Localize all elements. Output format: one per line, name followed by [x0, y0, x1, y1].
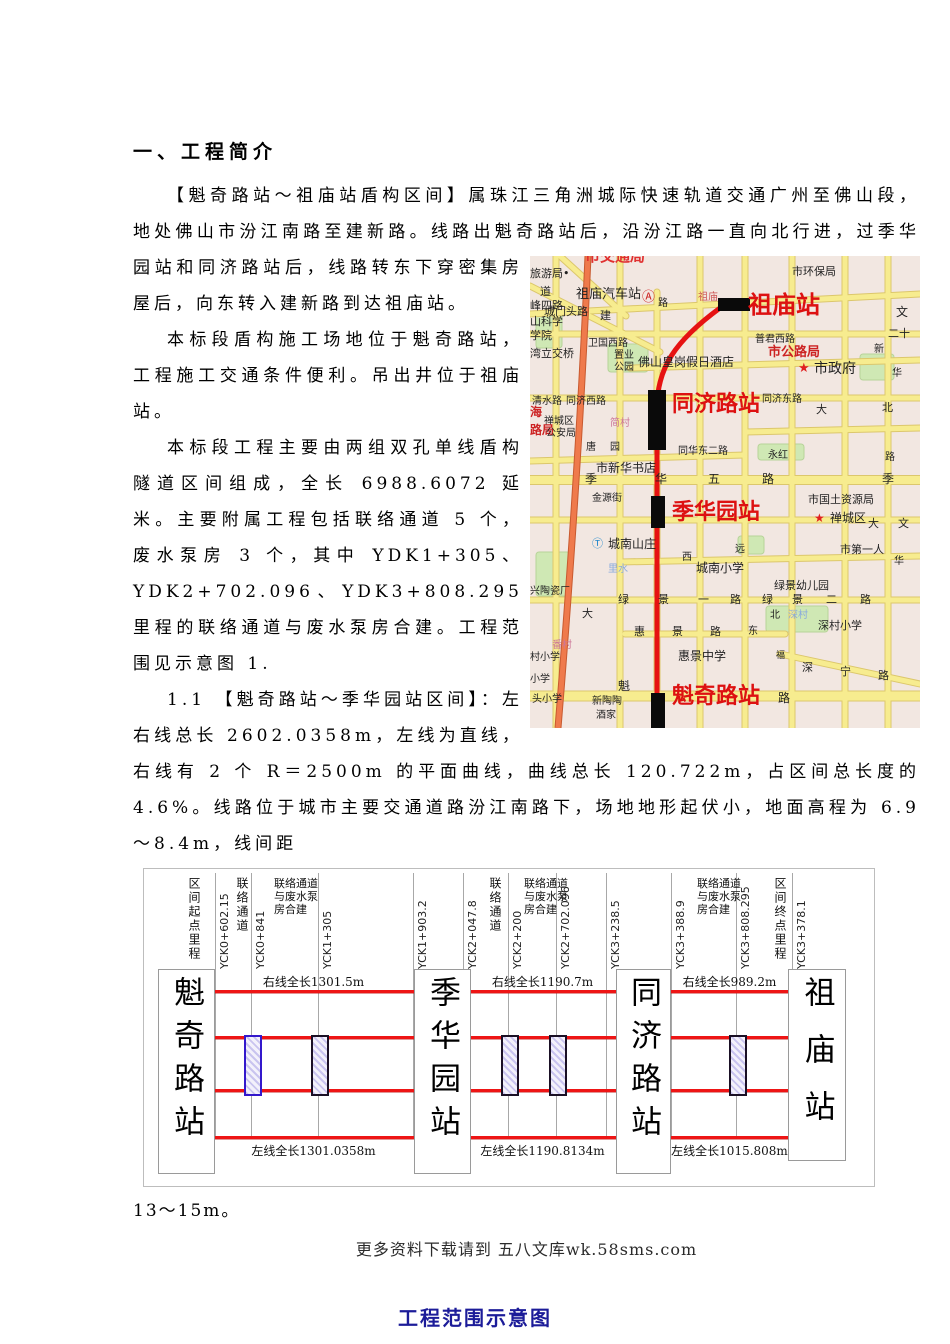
map-text-label: 建	[600, 310, 611, 322]
map-text-label: 绿	[762, 594, 773, 606]
track-line	[669, 990, 790, 993]
star-icon: ★	[814, 512, 825, 525]
chainage-label-text: YCK0+602.15	[218, 875, 231, 969]
map-text-label: 北	[770, 610, 780, 621]
map-text-label: 市第一人	[840, 544, 884, 556]
map-text-label: 同华东二路	[678, 446, 728, 457]
station-box: 同济路站	[616, 969, 671, 1174]
map-text-label: 魁	[618, 680, 630, 693]
map-text-label: 永红	[768, 450, 788, 461]
right-track-length-label: 右线全长1190.7m	[469, 973, 616, 990]
map-text-label: 华	[655, 473, 667, 486]
map-text-label: 禅城区	[830, 512, 866, 525]
chainage-label: YCK2+200	[511, 875, 524, 969]
map-text-label: 同济西路	[566, 396, 606, 407]
map-text-label: 兴陶瓷厂	[530, 586, 570, 597]
map-text-label: 季	[585, 473, 597, 486]
map-text-label: 路	[762, 473, 774, 486]
chainage-tick	[606, 873, 607, 1137]
right-track-length-label: 右线全长1301.5m	[213, 973, 414, 990]
station-name: 同济路站	[621, 970, 666, 1173]
page-content: 一、工程简介	[0, 0, 950, 1229]
map-station-label-zumiao: 祖庙站	[748, 292, 820, 318]
track-line	[213, 1136, 414, 1139]
map-text-label: 金源街	[592, 493, 622, 504]
map-text-label: 路	[878, 670, 889, 682]
station-name: 季华园站	[420, 970, 465, 1173]
map-text-label: 路	[778, 692, 790, 705]
map-text-label: 城南小学	[696, 562, 744, 575]
station-box: 魁奇路站	[158, 969, 215, 1174]
figure-annotation: 联络通道与废水泵房合建	[697, 877, 741, 916]
map-text-label: 华	[894, 556, 904, 567]
figure-annotation: 联络通道	[234, 877, 251, 933]
paragraph-1: 市交通局旅游局•市环保局道祖庙汽车站Ⓐ祖庙路祖庙站峰四路城门头路建文山科学学院二…	[133, 178, 920, 322]
chainage-tick	[318, 873, 319, 1137]
station-name: 祖庙站	[795, 970, 840, 1160]
map-text-label: 景	[658, 594, 669, 606]
map-text-label: 远	[735, 544, 745, 555]
map-text-label: 福	[776, 652, 785, 662]
map-text-label: 佛山皇岗假日酒店	[638, 356, 734, 369]
map-text-label: 大	[582, 608, 593, 620]
chainage-label: YCK3+388.9	[674, 875, 687, 969]
track-line	[469, 1089, 616, 1092]
map-text-label: 文	[896, 306, 908, 319]
map-text-label: 新陶陶	[592, 696, 622, 707]
map-text-label: 城南山庄	[608, 538, 656, 551]
chainage-label: YCK0+841	[254, 875, 267, 969]
chainage-label-text: YCK3+808.295	[739, 875, 752, 969]
map-text-label: 深村	[788, 610, 808, 621]
chainage-tick	[671, 873, 672, 1137]
chainage-tick	[251, 873, 252, 1137]
chainage-label-text: YCK1+903.2	[416, 875, 429, 969]
cross-passage	[311, 1035, 329, 1096]
map-text-label: 宁	[840, 666, 851, 678]
footer-text: 更多资料下载请到 五八文库wk.58sms.com	[133, 1236, 920, 1260]
chainage-label-text: YCK3+378.1	[795, 875, 808, 969]
map-text-label: 路	[860, 594, 871, 606]
map-text-label: 简村	[610, 418, 630, 429]
map-text-label: 华	[892, 368, 902, 379]
chainage-label: YCK2+702.096	[559, 875, 572, 969]
chainage-tick	[508, 873, 509, 1137]
map-text-label: 公安局	[546, 428, 576, 439]
track-line	[469, 1036, 616, 1039]
map-text-label: 路	[885, 452, 895, 463]
page-title: 一、工程简介	[133, 140, 920, 164]
map-text-label: 卫国西路	[588, 338, 628, 349]
map-text-label: 酒家	[596, 710, 616, 721]
map-text-label: 市环保局	[792, 266, 836, 278]
map-text-label: 惠	[634, 626, 645, 638]
chainage-label-text: YCK1+305	[321, 875, 334, 969]
map-text-label: 绿	[618, 594, 629, 606]
map-text-label: 绿景幼儿园	[774, 580, 829, 592]
chainage-label-text: YCK2+702.096	[559, 875, 572, 969]
map-station-rect	[651, 496, 665, 528]
map-text-label: 景	[672, 626, 683, 638]
map-text-label: 置业	[614, 350, 634, 361]
figure-annotation: 区间终点里程	[772, 877, 789, 961]
map-text-label: 村小学	[530, 652, 560, 663]
map-text-label: 海	[530, 406, 542, 419]
track-line	[469, 1136, 616, 1139]
map-text-label: 园	[610, 442, 620, 453]
station-box: 祖庙站	[788, 969, 846, 1161]
paragraph-4-continued: 13～15m。	[133, 1193, 920, 1229]
map-text-label: 景	[792, 594, 803, 606]
map-text-label: 一	[698, 594, 709, 606]
chainage-label: YCK3+808.295	[739, 875, 752, 969]
map-text-label: 季	[882, 473, 894, 486]
cross-passage	[244, 1035, 262, 1096]
map-text-label: 惠景中学	[678, 650, 726, 663]
cross-passage	[549, 1035, 567, 1096]
map-text-label: 大	[816, 404, 827, 416]
map-station-label-kuiqilu: 魁奇路站	[672, 684, 760, 708]
chainage-label: YCK3+378.1	[795, 875, 808, 969]
map-text-label: 市交通局	[585, 256, 645, 265]
map-text-label: 市新华书店	[596, 462, 656, 475]
landmark-icon: Ⓣ	[592, 538, 603, 550]
cross-passage	[501, 1035, 519, 1096]
map-text-label: 道	[540, 286, 551, 298]
map-text-label: 旅游局•	[530, 268, 570, 280]
figure-annotation: 区间起点里程	[186, 877, 203, 961]
station-name: 魁奇路站	[164, 970, 209, 1173]
map-text-label: 同济东路	[762, 394, 802, 405]
left-track-length-label: 左线全长1190.8134m	[469, 1142, 616, 1159]
chainage-tick	[215, 873, 216, 1137]
map-text-label: 路	[710, 626, 721, 638]
map-text-label: 祖庙	[698, 292, 718, 303]
chainage-label-text: YCK3+238.5	[609, 875, 622, 969]
track-line	[469, 990, 616, 993]
chainage-label-text: YCK3+388.9	[674, 875, 687, 969]
map-text-label: 深	[802, 662, 813, 674]
map-text-label: 西	[682, 552, 692, 563]
map-text-label: 里水	[608, 564, 628, 575]
map-text-label: 市公路局	[768, 346, 820, 360]
chainage-label: YCK2+047.8	[466, 875, 479, 969]
map-text-label: 新	[874, 344, 884, 355]
map-text-label: 唐	[586, 442, 596, 453]
chainage-label: YCK1+305	[321, 875, 334, 969]
map-station-rect	[651, 693, 665, 728]
chainage-label: YCK0+602.15	[218, 875, 231, 969]
map-text-label: 市政府	[814, 362, 856, 377]
cross-passage	[729, 1035, 747, 1096]
track-line	[669, 1136, 790, 1139]
map-station-label-jihuayuan: 季华园站	[672, 500, 760, 524]
left-track-length-label: 左线全长1015.808m	[669, 1142, 790, 1159]
map-text-label: 深村小学	[818, 620, 862, 632]
map-text-label: 头小学	[532, 694, 562, 705]
map-text-label: 公园	[614, 362, 634, 373]
map-station-rect	[718, 298, 750, 311]
map-text-label: 祖庙汽车站	[576, 288, 641, 302]
station-box: 季华园站	[414, 969, 471, 1174]
right-track-length-label: 右线全长989.2m	[669, 973, 790, 990]
track-line	[213, 990, 414, 993]
chainage-label-text: YCK0+841	[254, 875, 267, 969]
chainage-label-text: YCK2+047.8	[466, 875, 479, 969]
map-text-label: 普君西路	[755, 334, 795, 345]
map-text-label: 学院	[530, 330, 552, 342]
figure-caption: 工程范围示意图	[0, 1302, 950, 1331]
map: 市交通局旅游局•市环保局道祖庙汽车站Ⓐ祖庙路祖庙站峰四路城门头路建文山科学学院二…	[530, 256, 920, 728]
map-text-label: 五	[708, 473, 720, 486]
map-text-label: 山科学	[530, 316, 563, 328]
chainage-label-text: YCK2+200	[511, 875, 524, 969]
document-page: { "page": { "title": "一、工程简介", "paragrap…	[0, 0, 950, 1344]
map-text-label: 路	[730, 594, 741, 606]
map-text-label: 市国土资源局	[808, 494, 874, 506]
figure-annotation: 联络通道与废水泵房合建	[274, 877, 318, 916]
figure-canvas: 右线全长1301.5m左线全长1301.0358m右线全长1190.7m左线全长…	[143, 868, 875, 1187]
map-text-label: 番村	[552, 640, 572, 651]
map-text-label: 二十	[888, 328, 910, 340]
map-text-label: 北	[882, 402, 893, 414]
map-text-label: 路	[658, 298, 668, 309]
map-text-label: 大	[868, 518, 879, 530]
map-station-rect	[648, 390, 666, 450]
bus-station-icon: Ⓐ	[642, 291, 655, 305]
left-track-length-label: 左线全长1301.0358m	[213, 1142, 414, 1159]
chainage-label: YCK1+903.2	[416, 875, 429, 969]
map-text-label: 文	[898, 518, 909, 530]
map-text-label: 二	[826, 594, 837, 606]
map-text-label: 东	[748, 626, 758, 637]
star-icon: ★	[798, 362, 810, 376]
map-text-label: 小学	[530, 674, 550, 685]
figure-annotation: 联络通道	[487, 877, 504, 933]
chainage-label: YCK3+238.5	[609, 875, 622, 969]
map-station-label-tongjilu: 同济路站	[672, 392, 760, 416]
map-text-label: 湾立交桥	[530, 348, 574, 360]
